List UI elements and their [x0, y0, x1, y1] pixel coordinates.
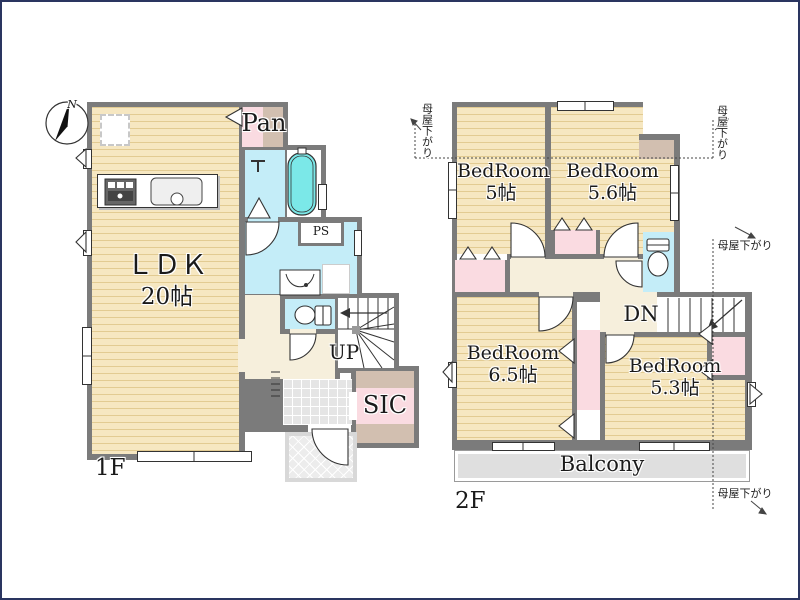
roof-slope-note-bottom-right: 母屋下がり [714, 488, 776, 500]
window-balcony-1 [492, 442, 555, 451]
room-hall-1f [245, 334, 335, 379]
bedroom-6-5-size: 6.5帖 [454, 366, 572, 386]
closet-strip [577, 330, 600, 410]
floor1-label: 1F [95, 456, 143, 480]
room-bathroom [287, 150, 321, 217]
closet-strip-top [577, 302, 600, 330]
floor-plan-canvas: N ＬＤＫ 20帖 Pan PS UP SIC 1F BedRoom 5帖 Be… [0, 0, 800, 600]
room-hall-1f-left [245, 295, 280, 334]
ldk-size: 20帖 [117, 285, 217, 309]
bedroom-5-size: 5帖 [457, 184, 545, 204]
closet-bedroom-5-6 [551, 230, 600, 254]
roof-slope-note-top-right: 母屋下がり [716, 100, 728, 164]
stairs-up-label: UP [324, 342, 364, 363]
room-sic-tan-bottom [356, 424, 414, 443]
window-ldk-left-1 [83, 149, 92, 169]
door-gap-lavatory [248, 217, 278, 222]
bedroom-5-name: BedRoom [457, 162, 545, 182]
pantry-label: Pan [240, 111, 288, 136]
window-ldk-bottom [137, 451, 252, 462]
room-sic-tan-top [356, 371, 414, 388]
door-gap-bedroom-6-5 [539, 292, 573, 297]
closet-bedroom-5 [455, 260, 509, 292]
window-2f-top [557, 101, 614, 111]
closet-strip-bottom [577, 410, 600, 440]
door-gap-bedroom-5 [511, 254, 545, 259]
closet-bedroom-5-6-top [639, 140, 674, 159]
door-gap-toilet-1f [290, 329, 316, 334]
room-entry-tile [283, 379, 352, 425]
door-gap-ldk-hall [238, 339, 245, 372]
stairs-down-label: DN [620, 303, 662, 325]
ldk-name: ＬＤＫ [117, 252, 217, 280]
pipe-space-label: PS [300, 225, 342, 238]
roof-notch-cover [643, 97, 683, 134]
bedroom-5-6-size: 5.6帖 [551, 184, 674, 204]
balcony-label: Balcony [542, 453, 662, 475]
sic-label: SIC [358, 393, 412, 418]
room-stairs-2f [657, 297, 745, 332]
bedroom-6-5-name: BedRoom [454, 344, 572, 364]
window-balcony-2 [639, 442, 710, 451]
window-ldk-left-2 [83, 230, 92, 256]
roof-slope-note-top-left: 母屋下がり [421, 98, 433, 162]
door-gap-bedroom-5-3 [606, 332, 634, 337]
window-2f-left [448, 162, 457, 219]
door-gap-toilet-2f [638, 261, 643, 288]
room-porch [285, 432, 357, 482]
floor2-label: 2F [455, 489, 503, 513]
bedroom-5-3-name: BedRoom [605, 357, 745, 377]
kitchen-counter [97, 174, 218, 208]
room-hall-2f [510, 259, 643, 292]
door-gap-sic [349, 392, 357, 420]
door-gap-bedroom-5-6 [604, 254, 638, 259]
window-lavatory [354, 230, 362, 256]
room-toilet-2f [643, 232, 674, 292]
room-toilet-1f [285, 299, 335, 329]
window-ldk-left-3 [82, 327, 92, 385]
bedroom-5-3-size: 5.3帖 [605, 379, 745, 399]
window-bedroom-5-3-right [747, 382, 756, 407]
refrigerator-space [100, 114, 130, 146]
room-washroom [245, 150, 285, 217]
door-gap-entrance [308, 425, 350, 432]
window-bathroom [318, 184, 327, 210]
washing-machine-pan [322, 264, 350, 294]
compass-north-label: N [64, 99, 80, 111]
roof-slope-note-mid-right: 母屋下がり [714, 240, 776, 252]
bedroom-5-6-name: BedRoom [551, 162, 674, 182]
